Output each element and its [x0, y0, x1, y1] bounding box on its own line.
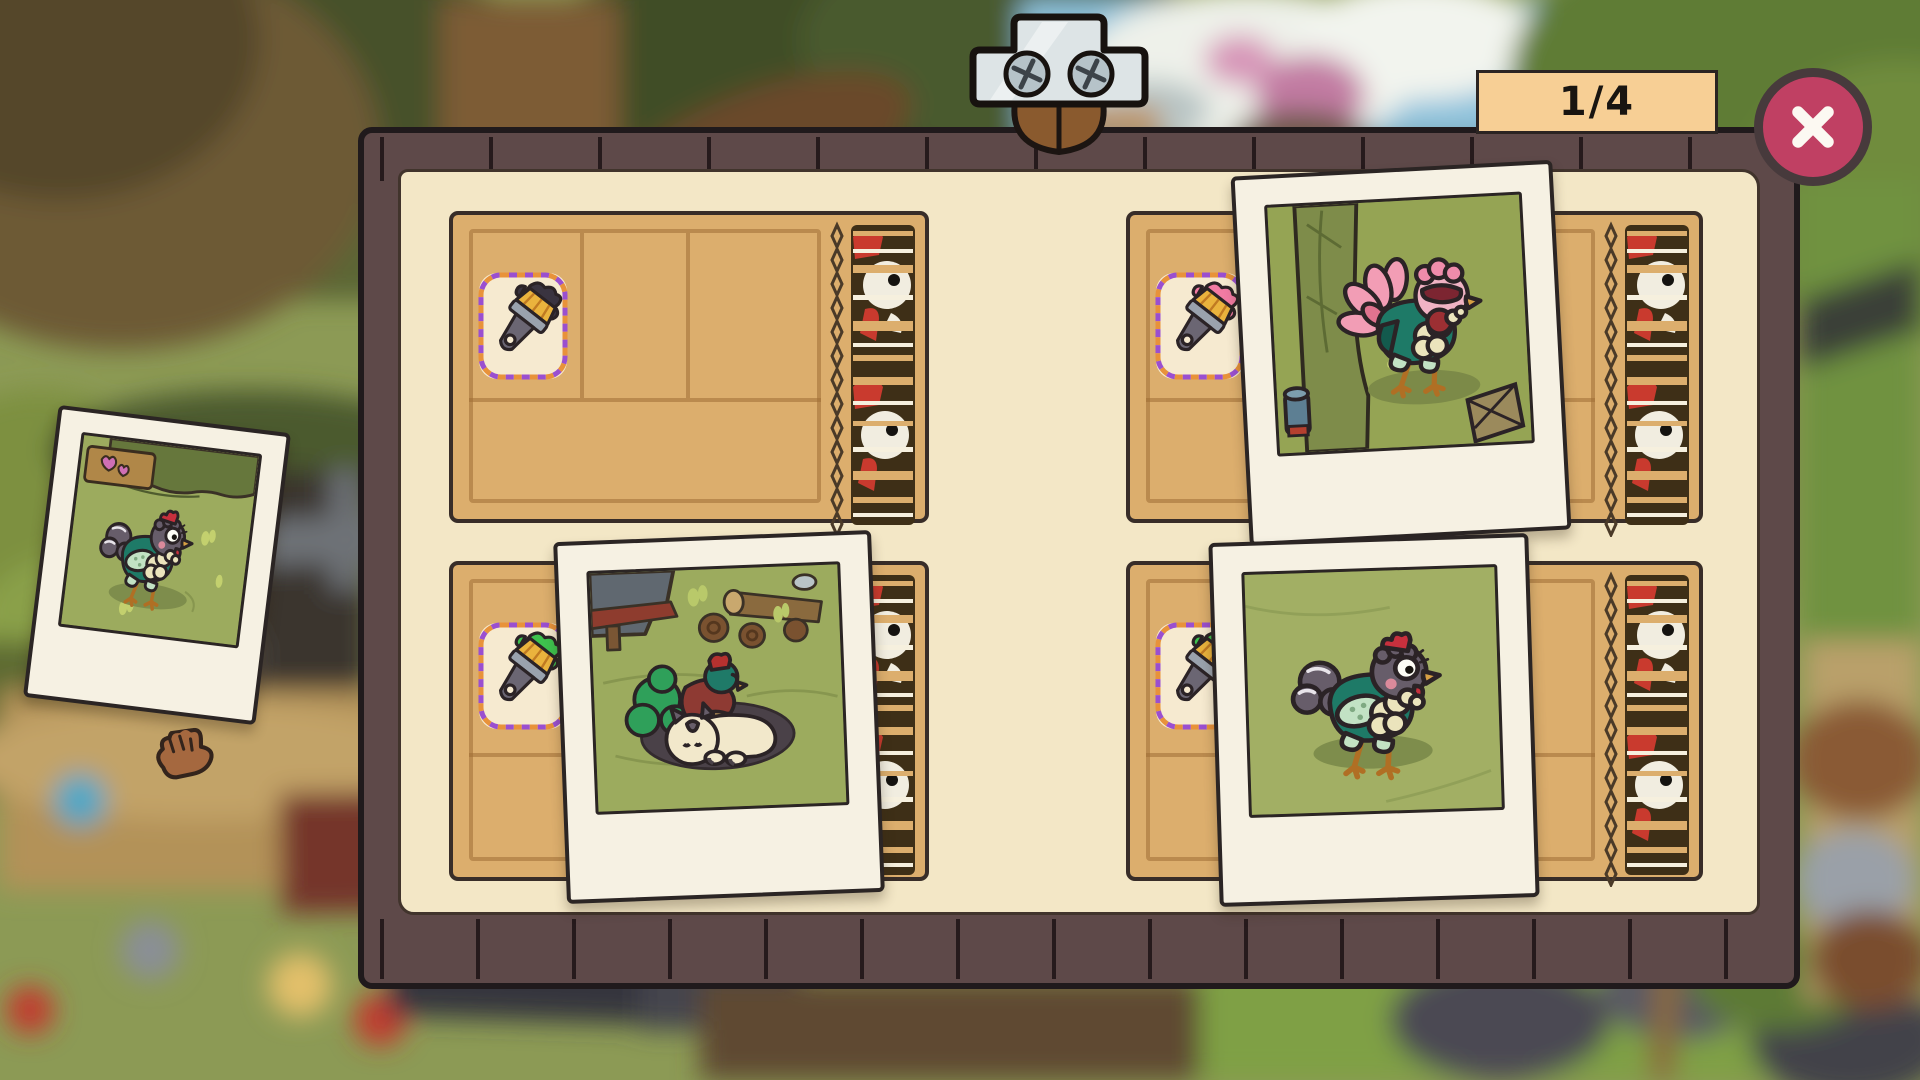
paintbrush-sticker [479, 273, 567, 379]
paintbrush-icon [483, 627, 563, 720]
paintbrush-sticker [479, 623, 567, 729]
ticket-stub-barcode [851, 225, 915, 525]
perforation-edge [1603, 571, 1619, 887]
board-clamp [952, 10, 1166, 182]
placed-photo-bottom-right[interactable] [1208, 533, 1539, 907]
progress-counter-text: 1/4 [1559, 79, 1635, 125]
x-icon [1782, 96, 1844, 158]
draggable-photo[interactable] [23, 405, 291, 725]
frame-tick-marks-bottom [380, 919, 1778, 979]
game-screen: 1/4 [0, 0, 1920, 1080]
ticket-stub-barcode [1625, 575, 1689, 875]
ticket-stub-barcode [1625, 225, 1689, 525]
placed-photo-bottom-left[interactable] [553, 530, 885, 904]
paintbrush-icon [483, 277, 563, 370]
photo-slot-top-left[interactable] [449, 211, 929, 523]
progress-counter-badge: 1/4 [1476, 70, 1718, 134]
placed-photo-top-right[interactable] [1231, 160, 1572, 546]
paintbrush-sticker [1156, 273, 1244, 379]
perforation-edge [829, 221, 845, 537]
hand-grab-cursor-icon [144, 726, 218, 795]
paintbrush-icon [1160, 277, 1240, 370]
close-button[interactable] [1754, 68, 1872, 186]
perforation-edge [1603, 221, 1619, 537]
